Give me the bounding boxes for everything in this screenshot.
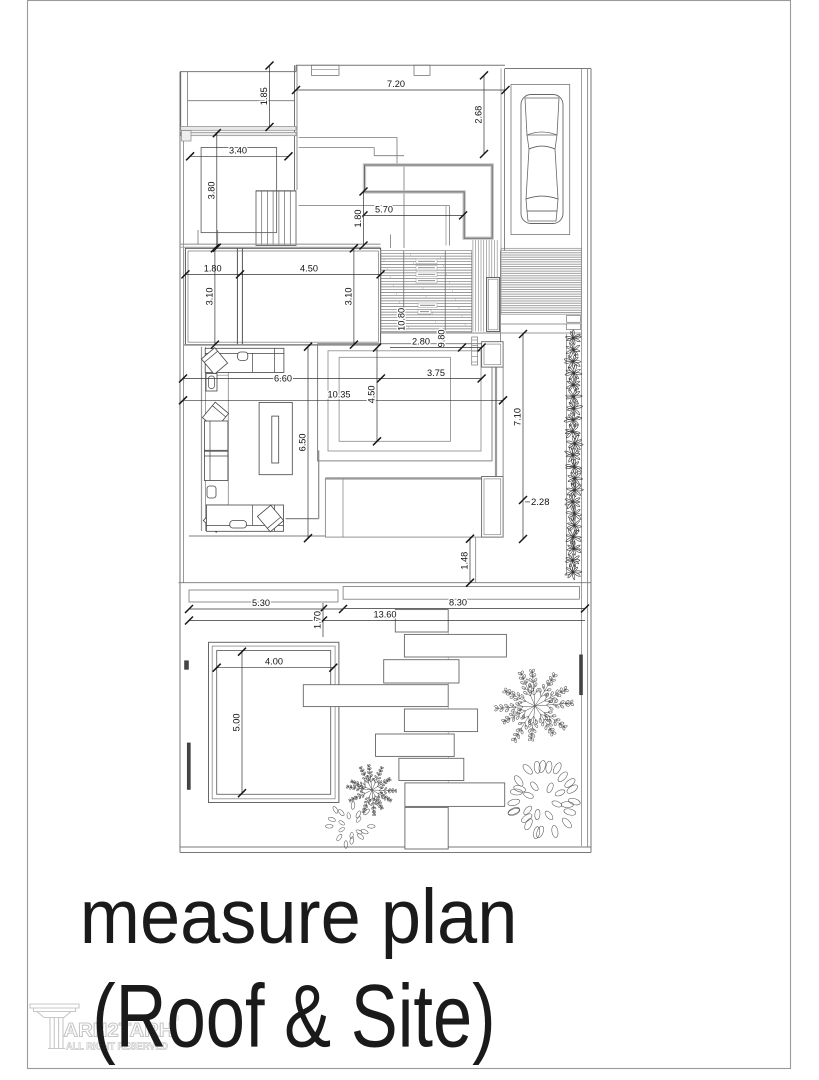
svg-text:3.75: 3.75 <box>427 368 445 378</box>
svg-text:2.80: 2.80 <box>412 337 430 347</box>
svg-text:measure plan: measure plan <box>80 873 518 960</box>
svg-text:13.60: 13.60 <box>374 610 397 620</box>
svg-text:3.10: 3.10 <box>343 288 353 306</box>
svg-text:8.30: 8.30 <box>449 598 467 608</box>
svg-text:1.85: 1.85 <box>259 87 269 105</box>
svg-text:3.80: 3.80 <box>206 182 216 200</box>
svg-text:5.30: 5.30 <box>252 598 270 608</box>
svg-text:5.00: 5.00 <box>232 714 242 732</box>
svg-text:4.50: 4.50 <box>300 263 318 273</box>
svg-text:1.80: 1.80 <box>204 263 222 273</box>
svg-text:2.68: 2.68 <box>474 106 484 124</box>
svg-text:7.20: 7.20 <box>387 79 405 89</box>
svg-text:(Roof & Site): (Roof & Site) <box>92 967 495 1067</box>
svg-text:6.50: 6.50 <box>298 434 308 452</box>
svg-text:9.80: 9.80 <box>437 329 447 347</box>
svg-text:4.50: 4.50 <box>367 386 377 404</box>
svg-text:10.80: 10.80 <box>396 308 406 331</box>
svg-text:10.35: 10.35 <box>328 389 351 399</box>
svg-text:3.40: 3.40 <box>229 146 247 156</box>
svg-text:7.10: 7.10 <box>513 408 523 426</box>
svg-text:1.48: 1.48 <box>460 552 470 570</box>
svg-text:3.10: 3.10 <box>204 288 214 306</box>
svg-text:1.70: 1.70 <box>313 611 323 629</box>
svg-text:5.70: 5.70 <box>375 205 393 215</box>
svg-text:1.80: 1.80 <box>353 210 363 228</box>
svg-text:6.60: 6.60 <box>274 374 292 384</box>
svg-text:2.28: 2.28 <box>531 497 550 508</box>
svg-text:4.00: 4.00 <box>265 657 283 667</box>
